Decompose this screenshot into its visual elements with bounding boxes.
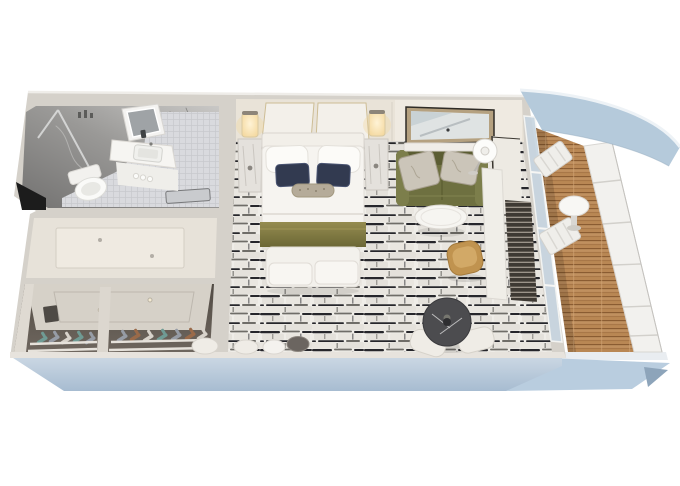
bath-mat-rect bbox=[166, 188, 211, 203]
table-center bbox=[443, 318, 451, 326]
pouf bbox=[192, 338, 218, 354]
bolster-dot bbox=[315, 190, 317, 192]
downlight bbox=[150, 254, 154, 258]
lamp-base bbox=[468, 171, 478, 175]
walk-in-closet bbox=[14, 284, 214, 352]
floor-plan-render bbox=[0, 0, 680, 486]
nightstand-knob bbox=[374, 164, 379, 169]
bench-cushion bbox=[315, 261, 358, 284]
sink-faucet bbox=[149, 142, 152, 145]
pouf bbox=[234, 340, 258, 354]
balcony-fascia bbox=[556, 352, 668, 360]
vanity-sink bbox=[133, 145, 162, 163]
box bbox=[43, 305, 59, 323]
bathroom bbox=[16, 104, 219, 210]
hull-band bbox=[10, 356, 562, 391]
toiletry-bottle bbox=[90, 113, 93, 118]
towel-roll bbox=[147, 176, 152, 181]
closet-downlight bbox=[148, 298, 152, 302]
navy-pillow bbox=[316, 163, 350, 187]
lamp-top bbox=[481, 147, 489, 155]
towel-roll bbox=[140, 175, 145, 180]
bed-runner bbox=[260, 222, 366, 247]
sconce-shade bbox=[369, 112, 385, 136]
nightstand bbox=[238, 139, 262, 192]
nightstand-knob bbox=[248, 166, 253, 171]
bench-shadow bbox=[267, 287, 359, 295]
stateroom-floorplan-svg bbox=[0, 0, 680, 486]
dark-pouf bbox=[287, 337, 309, 352]
navy-pillow bbox=[275, 163, 309, 187]
mirror-mark bbox=[446, 128, 449, 131]
chair-shadow bbox=[448, 274, 484, 282]
sconce-cap bbox=[369, 110, 385, 114]
bench-cushion bbox=[269, 263, 312, 285]
bolster-dot bbox=[299, 189, 301, 191]
bolster-dot bbox=[323, 188, 325, 190]
entry-ceiling-panel bbox=[56, 228, 184, 268]
sconce-cap bbox=[242, 111, 258, 115]
storage-box bbox=[43, 305, 59, 323]
towel-roll bbox=[133, 173, 138, 178]
toiletry-bottle bbox=[84, 110, 87, 118]
bath-mat bbox=[166, 188, 211, 203]
front-wall-face bbox=[10, 352, 566, 358]
toiletry-bottle bbox=[78, 112, 81, 118]
bolster-pillow bbox=[292, 184, 334, 197]
sconce-shade bbox=[242, 113, 258, 137]
sofa bbox=[396, 150, 488, 206]
bed bbox=[260, 133, 366, 295]
table-foot bbox=[567, 225, 581, 231]
downlight bbox=[98, 238, 102, 242]
entry-hall bbox=[26, 218, 217, 278]
bolster-dot bbox=[307, 188, 309, 190]
coffee-table bbox=[415, 205, 467, 237]
balcony-table bbox=[559, 196, 589, 216]
pouf bbox=[263, 340, 285, 354]
